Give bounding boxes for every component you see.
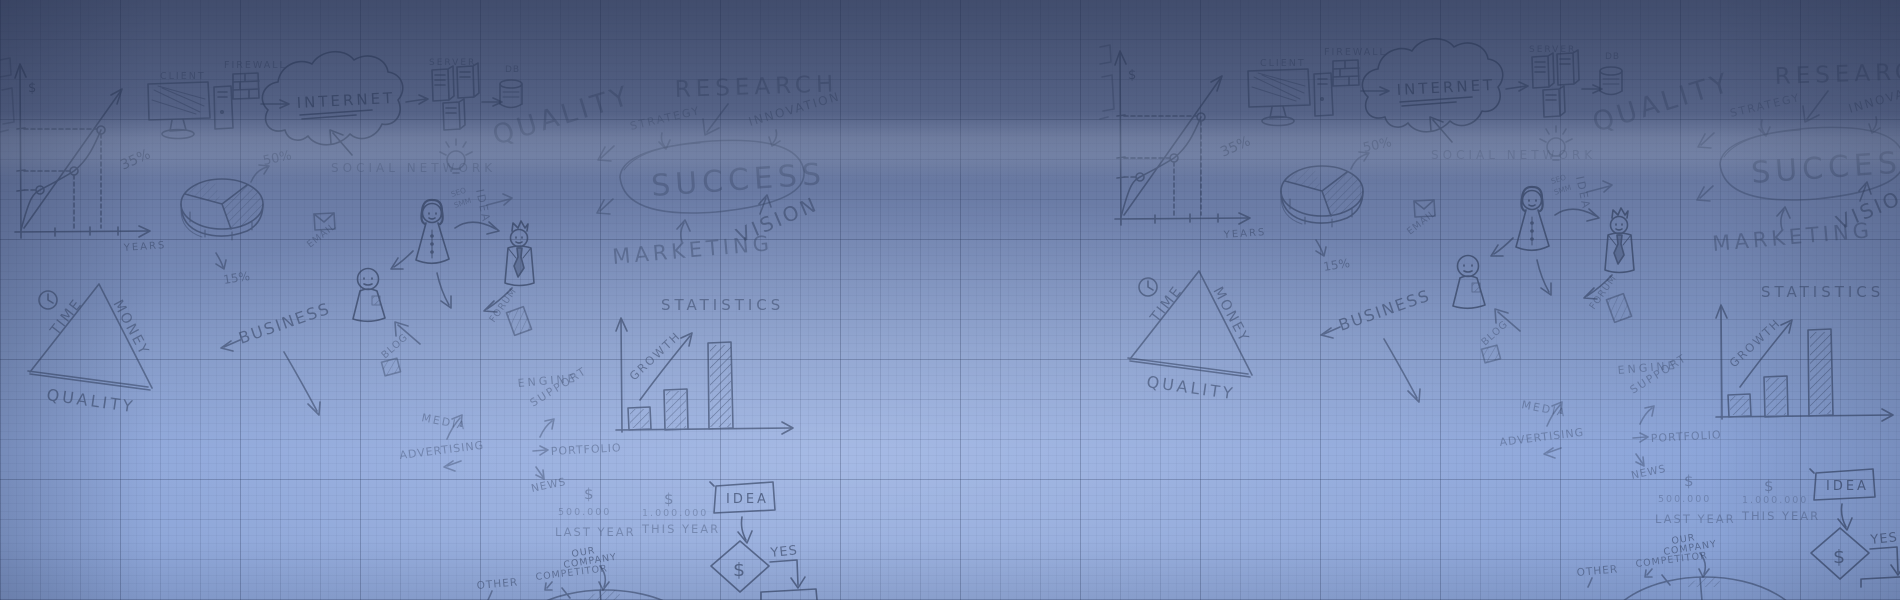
hero-banner-background: $ YEARS 35% CLIENT: [0, 0, 1900, 600]
business-doodles-layer: $ YEARS 35% CLIENT: [0, 0, 1900, 600]
doodle-tile-left: [0, 52, 842, 600]
doodle-tile-right: [1100, 39, 1900, 600]
